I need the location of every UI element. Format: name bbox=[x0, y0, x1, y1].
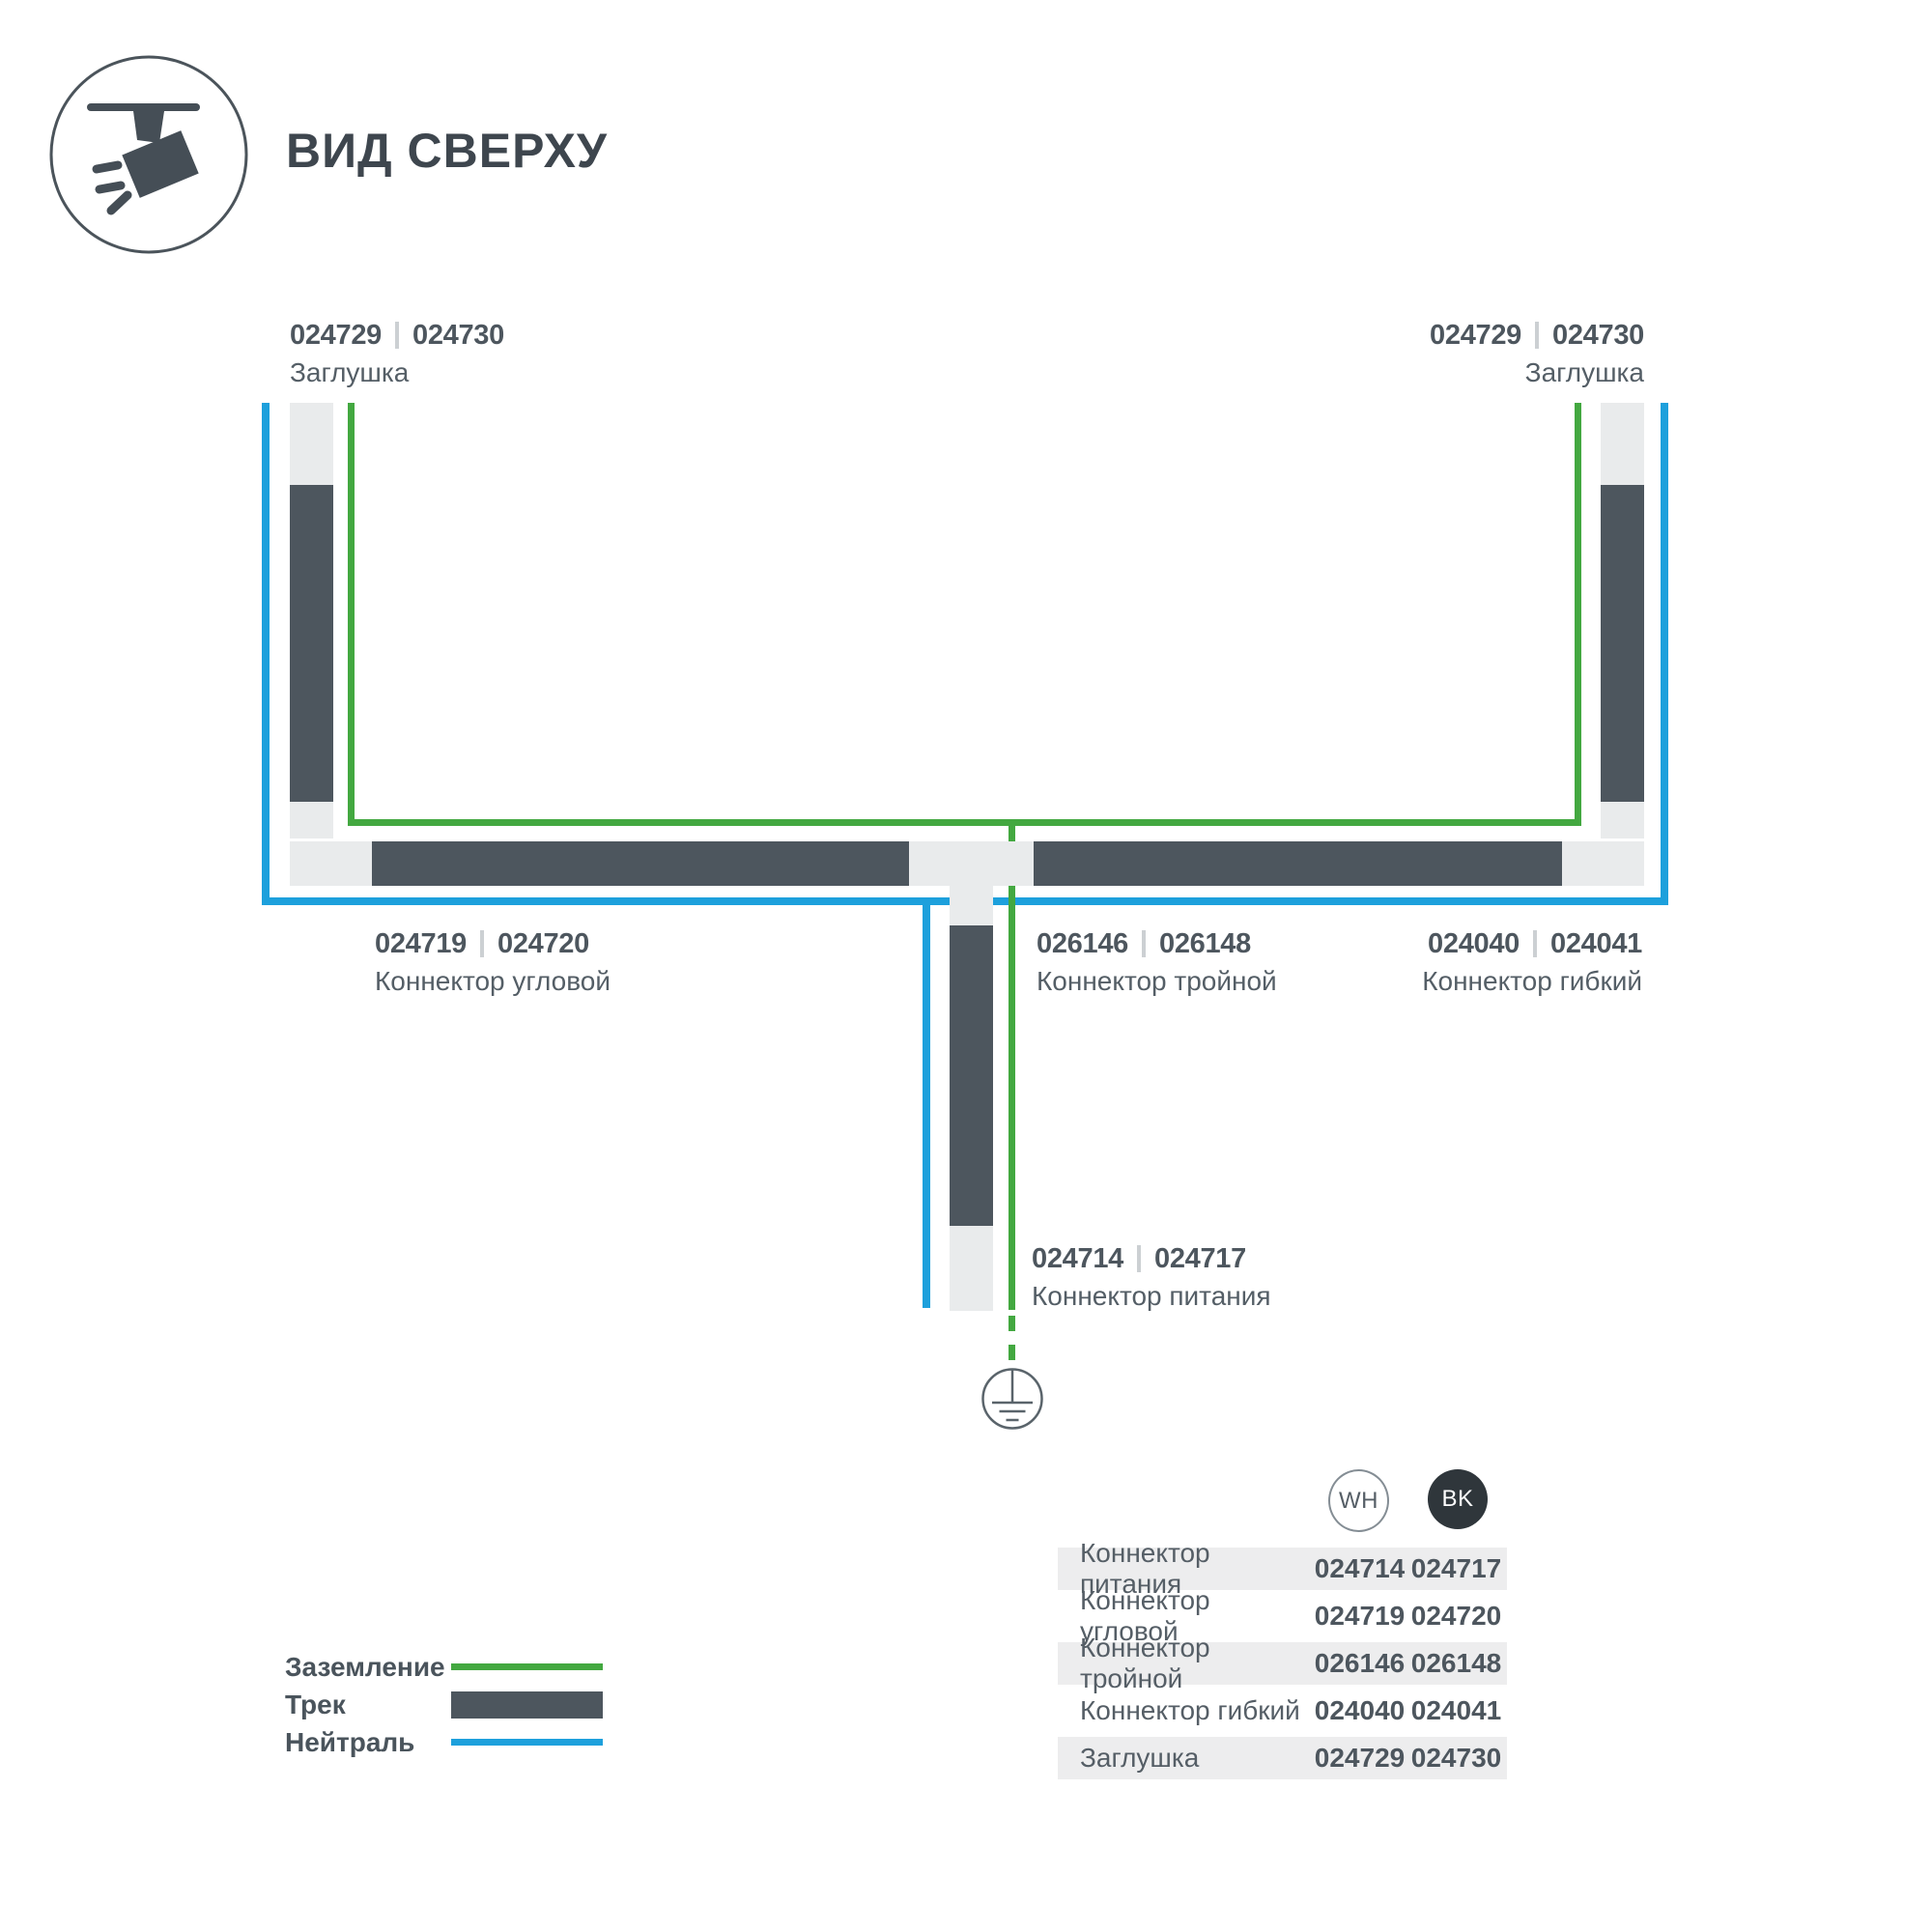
code-separator bbox=[480, 930, 484, 957]
part-name: Заглушка bbox=[1430, 358, 1644, 387]
row-code-wh: 024729 bbox=[1314, 1743, 1406, 1774]
row-code-bk: 026148 bbox=[1406, 1648, 1507, 1679]
track-segment-top-right-horizontal bbox=[1034, 841, 1562, 886]
code-bk: 024730 bbox=[412, 320, 504, 351]
code-bk: 024730 bbox=[1552, 320, 1644, 351]
color-badge-black: BK bbox=[1428, 1469, 1488, 1529]
legend-swatch-track bbox=[451, 1691, 603, 1719]
label-end-cap-top-right: 024729 024730 Заглушка bbox=[1430, 320, 1644, 387]
ground-wire-left-vertical bbox=[348, 403, 355, 826]
corner-connector-left-horizontal-part bbox=[290, 841, 372, 886]
part-codes: 024719 024720 bbox=[375, 928, 611, 959]
label-triple-connector: 026146 026148 Коннектор тройной bbox=[1037, 928, 1277, 996]
code-wh: 024729 bbox=[290, 320, 382, 351]
track-segment-top-left-horizontal bbox=[372, 841, 909, 886]
legend-swatch-ground bbox=[451, 1663, 603, 1670]
legend-label: Трек bbox=[285, 1690, 451, 1720]
legend-item-neutral: Нейтраль bbox=[285, 1723, 603, 1761]
code-wh: 026146 bbox=[1037, 928, 1128, 959]
label-power-connector: 024714 024717 Коннектор питания bbox=[1032, 1243, 1271, 1311]
triple-connector-stem bbox=[950, 886, 993, 925]
row-code-wh: 026146 bbox=[1314, 1648, 1406, 1679]
ground-wire-feed-vertical bbox=[1009, 824, 1015, 1310]
neutral-wire-left-vertical bbox=[262, 403, 270, 905]
code-wh: 024729 bbox=[1430, 320, 1521, 351]
row-code-wh: 024719 bbox=[1314, 1601, 1406, 1632]
power-connector-end-cap bbox=[950, 1226, 993, 1311]
legend: Заземление Трек Нейтраль bbox=[285, 1648, 603, 1761]
row-code-wh: 024714 bbox=[1314, 1553, 1406, 1584]
legend-swatch-neutral bbox=[451, 1739, 603, 1746]
part-name: Коннектор угловой bbox=[375, 967, 611, 996]
legend-item-ground: Заземление bbox=[285, 1648, 603, 1686]
row-code-bk: 024717 bbox=[1406, 1553, 1507, 1584]
neutral-wire-right-vertical bbox=[1661, 403, 1668, 905]
top-view-diagram-page: ВИД СВЕРХУ bbox=[0, 0, 1932, 1932]
row-code-bk: 024041 bbox=[1406, 1695, 1507, 1726]
triple-connector-body bbox=[909, 841, 1034, 886]
end-cap-top-right bbox=[1601, 403, 1644, 485]
part-codes: 024729 024730 bbox=[1430, 320, 1644, 351]
part-codes: 024040 024041 bbox=[1422, 928, 1642, 959]
flexible-connector-right-horizontal-part bbox=[1562, 841, 1644, 886]
code-bk: 024717 bbox=[1154, 1243, 1246, 1274]
track-segment-right-vertical bbox=[1601, 485, 1644, 802]
legend-label: Нейтраль bbox=[285, 1727, 451, 1758]
legend-label: Заземление bbox=[285, 1652, 451, 1683]
product-code-table: WH BK Коннектор питания 024714 024717 Ко… bbox=[1058, 1469, 1507, 1784]
table-row: Заглушка 024729 024730 bbox=[1058, 1737, 1507, 1779]
table-row: Коннектор питания 024714 024717 bbox=[1058, 1548, 1507, 1590]
code-separator bbox=[1535, 322, 1539, 349]
label-corner-connector: 024719 024720 Коннектор угловой bbox=[375, 928, 611, 996]
code-bk: 024041 bbox=[1550, 928, 1642, 959]
part-codes: 026146 026148 bbox=[1037, 928, 1277, 959]
code-wh: 024040 bbox=[1428, 928, 1520, 959]
ground-wire-dashed-tail bbox=[1009, 1316, 1015, 1360]
legend-item-track: Трек bbox=[285, 1686, 603, 1723]
label-flexible-connector: 024040 024041 Коннектор гибкий bbox=[1422, 928, 1642, 996]
part-codes: 024714 024717 bbox=[1032, 1243, 1271, 1274]
row-code-wh: 024040 bbox=[1314, 1695, 1406, 1726]
part-name: Коннектор гибкий bbox=[1422, 967, 1642, 996]
part-name: Заглушка bbox=[290, 358, 504, 387]
code-separator bbox=[1137, 1245, 1141, 1272]
end-cap-top-left bbox=[290, 403, 333, 485]
table-row: Коннектор тройной 026146 026148 bbox=[1058, 1642, 1507, 1685]
code-separator bbox=[1142, 930, 1146, 957]
row-label: Заглушка bbox=[1058, 1743, 1314, 1774]
track-segment-feed-vertical bbox=[950, 925, 993, 1226]
row-label: Коннектор тройной bbox=[1058, 1633, 1314, 1694]
code-bk: 024720 bbox=[497, 928, 589, 959]
flexible-connector-right-vertical-part bbox=[1601, 802, 1644, 838]
code-separator bbox=[1533, 930, 1537, 957]
label-end-cap-top-left: 024729 024730 Заглушка bbox=[290, 320, 504, 387]
row-code-bk: 024720 bbox=[1406, 1601, 1507, 1632]
table-header: WH BK bbox=[1058, 1469, 1507, 1548]
table-row: Коннектор гибкий 024040 024041 bbox=[1058, 1690, 1507, 1732]
code-separator bbox=[395, 322, 399, 349]
part-codes: 024729 024730 bbox=[290, 320, 504, 351]
part-name: Коннектор питания bbox=[1032, 1282, 1271, 1311]
color-badge-white: WH bbox=[1328, 1469, 1389, 1532]
row-label: Коннектор гибкий bbox=[1058, 1695, 1314, 1726]
corner-connector-left-vertical-part bbox=[290, 802, 333, 838]
ground-wire-top-horizontal bbox=[348, 819, 1581, 826]
code-wh: 024714 bbox=[1032, 1243, 1123, 1274]
part-name: Коннектор тройной bbox=[1037, 967, 1277, 996]
neutral-wire-feed-vertical bbox=[923, 905, 930, 1308]
earth-ground-symbol bbox=[979, 1365, 1046, 1433]
table-row: Коннектор угловой 024719 024720 bbox=[1058, 1595, 1507, 1637]
track-layout-diagram: 024729 024730 Заглушка 024729 024730 Заг… bbox=[0, 0, 1932, 1932]
ground-wire-right-vertical bbox=[1575, 403, 1581, 826]
row-code-bk: 024730 bbox=[1406, 1743, 1507, 1774]
track-segment-left-vertical bbox=[290, 485, 333, 802]
code-bk: 026148 bbox=[1159, 928, 1251, 959]
code-wh: 024719 bbox=[375, 928, 467, 959]
